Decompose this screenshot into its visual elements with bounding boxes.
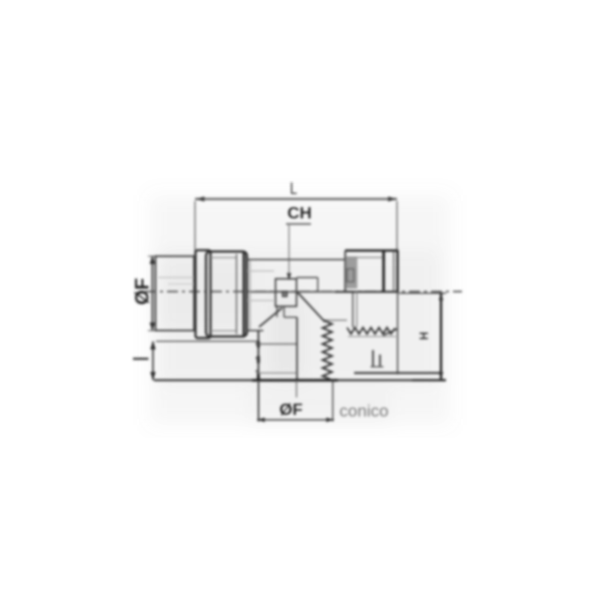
svg-text:L: L — [290, 180, 297, 199]
svg-text:ØF: ØF — [279, 400, 303, 419]
svg-text:CH: CH — [287, 204, 312, 223]
svg-text:ØF: ØF — [132, 278, 154, 305]
svg-text:conico: conico — [339, 401, 388, 420]
svg-text:H: H — [419, 332, 431, 340]
